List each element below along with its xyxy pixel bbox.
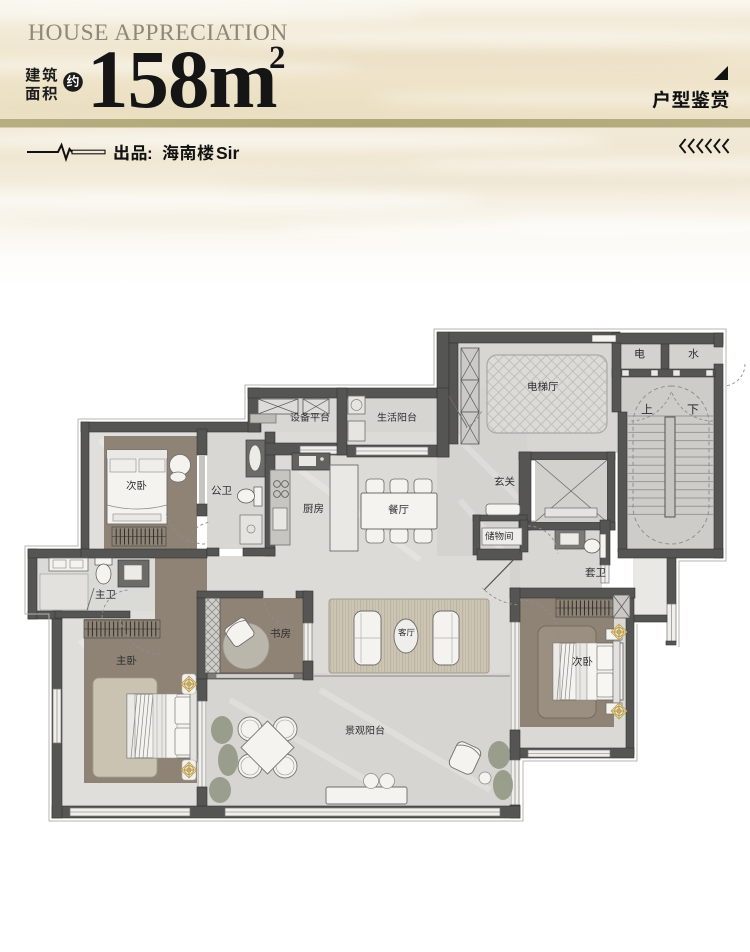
svg-text:2: 2 xyxy=(269,40,286,76)
svg-text:158m: 158m xyxy=(87,33,277,125)
svg-text::: : xyxy=(147,144,153,163)
svg-text:Sir: Sir xyxy=(216,143,240,163)
